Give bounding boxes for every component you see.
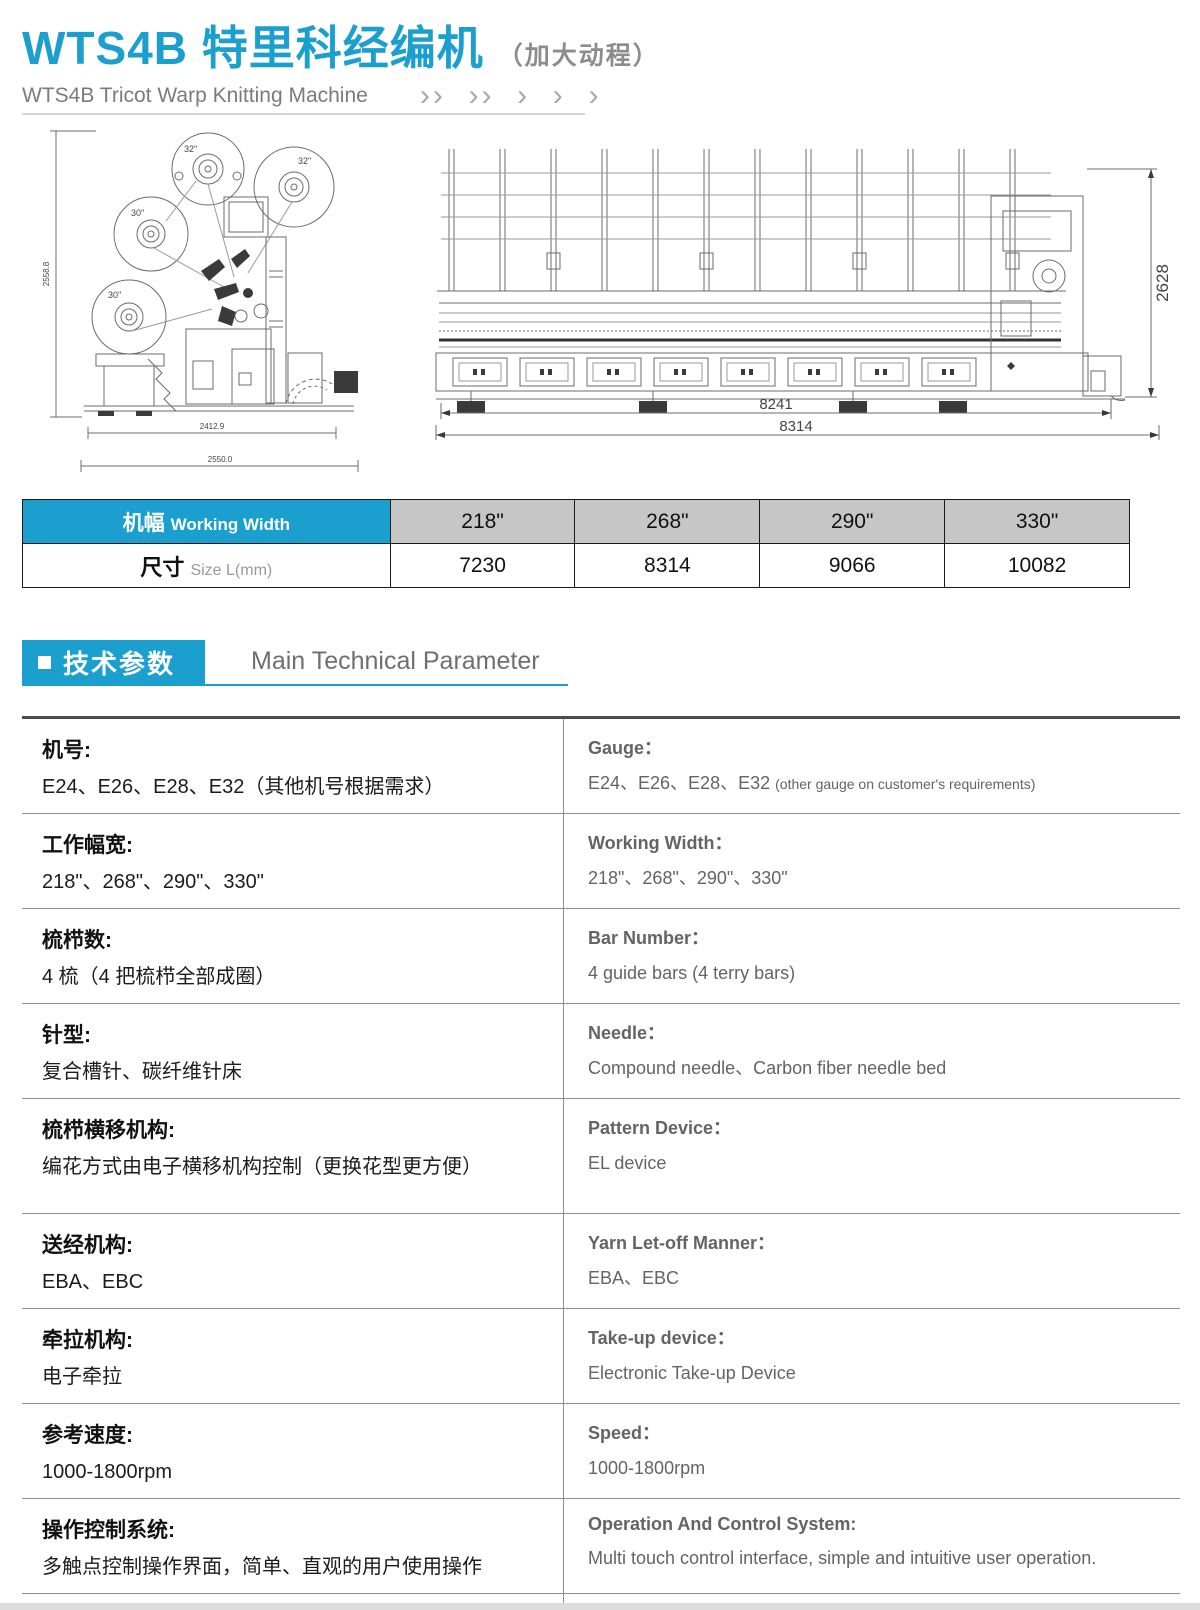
param-cn-label: 送经机构: <box>42 1229 547 1259</box>
param-en-cell: Yarn Let-off Manner： EBA、EBC <box>563 1214 1180 1308</box>
param-en-label: Pattern Device： <box>588 1114 1164 1140</box>
param-en-label: Speed： <box>588 1419 1164 1445</box>
width-column-218: 218" <box>390 500 575 544</box>
width-column-330: 330" <box>945 500 1130 544</box>
subtitle-row: WTS4B Tricot Warp Knitting Machine ›› ››… <box>22 84 1200 108</box>
param-en-note: (other gauge on customer's requirements) <box>775 776 1035 792</box>
param-cn-value: 电子牵拉 <box>42 1362 547 1393</box>
param-en-label: Yarn Let-off Manner： <box>588 1229 1164 1255</box>
page-header: WTS4B 特里科经编机 （加大动程） <box>22 12 1200 78</box>
width-column-290: 290" <box>760 500 945 544</box>
size-header-en: Working Width <box>171 515 290 534</box>
title-chinese: 特里科经编机 <box>202 22 484 74</box>
beam-label-32b: 32" <box>298 156 311 166</box>
param-en-value: EL device <box>588 1151 1164 1176</box>
front-view-drawing: 2628 8241 8314 <box>411 141 1181 441</box>
size-table-value-row: 尺寸Size L(mm) 7230 8314 9066 10082 <box>23 544 1130 588</box>
param-en-label: Working Width： <box>588 829 1164 855</box>
param-en-label: Gauge： <box>588 734 1164 760</box>
table-row: 操作控制系统: 多触点控制操作界面，简单、直观的用户使用操作 Operation… <box>22 1499 1180 1594</box>
param-en-cell: Operation And Control System: Multi touc… <box>563 1499 1180 1593</box>
beam-label-30a: 30" <box>131 208 144 218</box>
size-value-330: 10082 <box>945 544 1130 588</box>
param-en-value: Multi touch control interface, simple an… <box>588 1546 1164 1571</box>
param-en-value: Electronic Take-up Device <box>588 1361 1164 1386</box>
param-cn-value: 1000-1800rpm <box>42 1457 547 1488</box>
title-suffix: （加大动程） <box>498 36 660 72</box>
param-cn-cell: 工作幅宽: 218"、268"、290"、330" <box>22 814 563 908</box>
param-cn-label: 针型: <box>42 1019 547 1049</box>
section-badge: 技术参数 <box>22 640 205 684</box>
param-cn-label: 梳栉数: <box>42 924 547 954</box>
front-dim-inner: 8241 <box>759 396 792 413</box>
table-row: 牵拉机构: 电子牵拉 Take-up device： Electronic Ta… <box>22 1309 1180 1404</box>
beam-label-32a: 32" <box>184 144 197 154</box>
table-row: 工作幅宽: 218"、268"、290"、330" Working Width：… <box>22 814 1180 909</box>
chevron-decoration-icon: ›› ›› › › › <box>420 86 602 106</box>
param-en-cell: Gauge： E24、E26、E28、E32 (other gauge on c… <box>563 719 1180 813</box>
param-en-cell: Pattern Device： EL device <box>563 1099 1180 1213</box>
table-row: 送经机构: EBA、EBC Yarn Let-off Manner： EBA、E… <box>22 1214 1180 1309</box>
table-row: 机号: E24、E26、E28、E32（其他机号根据需求） Gauge： E24… <box>22 719 1180 814</box>
beam-label-30b: 30" <box>108 290 121 300</box>
param-cn-value: 复合槽针、碳纤维针床 <box>42 1057 547 1088</box>
size-table-header-row: 机幅Working Width 218" 268" 290" 330" <box>23 500 1130 544</box>
param-cn-cell: 参考速度: 1000-1800rpm <box>22 1404 563 1498</box>
param-cn-label: 工作幅宽: <box>42 829 547 859</box>
section-title-cn: 技术参数 <box>63 644 175 681</box>
param-en-label: Operation And Control System: <box>588 1514 1164 1535</box>
param-cn-cell: 梳栉横移机构: 编花方式由电子横移机构控制（更换花型更方便） <box>22 1099 563 1213</box>
param-en-cell: Take-up device： Electronic Take-up Devic… <box>563 1309 1180 1403</box>
param-en-cell: Speed： 1000-1800rpm <box>563 1404 1180 1498</box>
param-cn-label: 梳栉横移机构: <box>42 1114 547 1144</box>
param-en-value: 4 guide bars (4 terry bars) <box>588 961 1164 986</box>
param-cn-value: 4 梳（4 把梳栉全部成圈） <box>42 962 547 993</box>
size-row-cn: 尺寸 <box>140 555 184 580</box>
width-column-268: 268" <box>575 500 760 544</box>
param-cn-value: E24、E26、E28、E32（其他机号根据需求） <box>42 772 547 803</box>
param-en-value: Compound needle、Carbon fiber needle bed <box>588 1056 1164 1081</box>
param-cn-cell: 针型: 复合槽针、碳纤维针床 <box>22 1004 563 1098</box>
size-header-cn: 机幅 <box>123 512 165 535</box>
size-value-290: 9066 <box>760 544 945 588</box>
section-header: 技术参数 Main Technical Parameter <box>22 640 568 686</box>
table-row: 梳栉横移机构: 编花方式由电子横移机构控制（更换花型更方便） Pattern D… <box>22 1099 1180 1214</box>
param-cn-label: 参考速度: <box>42 1419 547 1449</box>
table-row: 参考速度: 1000-1800rpm Speed： 1000-1800rpm <box>22 1404 1180 1499</box>
param-en-value: 1000-1800rpm <box>588 1456 1164 1481</box>
param-cn-label: 操作控制系统: <box>42 1514 547 1544</box>
param-en-cell: Needle： Compound needle、Carbon fiber nee… <box>563 1004 1180 1098</box>
square-bullet-icon <box>38 656 51 669</box>
param-cn-value: 编花方式由电子横移机构控制（更换花型更方便） <box>42 1152 547 1183</box>
param-en-value: E24、E26、E28、E32 (other gauge on customer… <box>588 771 1164 796</box>
side-view-drawing: 2558.8 32" 32" 30" 30" <box>36 121 381 481</box>
param-cn-value: 218"、268"、290"、330" <box>42 867 547 898</box>
param-cn-value: 多触点控制操作界面，简单、直观的用户使用操作 <box>42 1552 547 1583</box>
param-cn-label: 机号: <box>42 734 547 764</box>
table-row: 针型: 复合槽针、碳纤维针床 Needle： Compound needle、C… <box>22 1004 1180 1099</box>
param-cn-value: EBA、EBC <box>42 1267 547 1298</box>
side-dim-inner: 2412.9 <box>200 422 225 431</box>
parameter-table: 机号: E24、E26、E28、E32（其他机号根据需求） Gauge： E24… <box>22 716 1180 1610</box>
brochure-page: WTS4B 特里科经编机 （加大动程） WTS4B Tricot Warp Kn… <box>0 0 1200 1610</box>
front-dim-height: 2628 <box>1153 264 1172 302</box>
front-dim-outer: 8314 <box>779 418 812 435</box>
param-cn-cell: 操作控制系统: 多触点控制操作界面，简单、直观的用户使用操作 <box>22 1499 563 1593</box>
page-title: WTS4B 特里科经编机 <box>22 12 484 78</box>
size-row-en: Size L(mm) <box>190 562 272 579</box>
param-en-value: EBA、EBC <box>588 1266 1164 1291</box>
side-dim-height: 2558.8 <box>42 261 51 286</box>
size-table-header-cell: 机幅Working Width <box>23 500 391 544</box>
subtitle-divider <box>22 113 585 115</box>
param-cn-cell: 梳栉数: 4 梳（4 把梳栉全部成圈） <box>22 909 563 1003</box>
size-row-label-cell: 尺寸Size L(mm) <box>23 544 391 588</box>
side-dim-outer: 2550.0 <box>208 455 233 464</box>
param-cn-cell: 牵拉机构: 电子牵拉 <box>22 1309 563 1403</box>
page-bottom-strip <box>0 1603 1200 1610</box>
param-cn-label: 牵拉机构: <box>42 1324 547 1354</box>
title-model: WTS4B <box>22 22 188 74</box>
param-en-value-text: E24、E26、E28、E32 <box>588 773 775 793</box>
technical-drawings: 2558.8 32" 32" 30" 30" <box>22 121 1200 489</box>
param-en-value: 218"、268"、290"、330" <box>588 866 1164 891</box>
size-table: 机幅Working Width 218" 268" 290" 330" 尺寸Si… <box>22 499 1130 588</box>
param-en-cell: Bar Number： 4 guide bars (4 terry bars) <box>563 909 1180 1003</box>
param-en-label: Take-up device： <box>588 1324 1164 1350</box>
section-title-en: Main Technical Parameter <box>251 647 540 684</box>
page-subtitle: WTS4B Tricot Warp Knitting Machine <box>22 84 368 108</box>
size-value-218: 7230 <box>390 544 575 588</box>
param-cn-cell: 机号: E24、E26、E28、E32（其他机号根据需求） <box>22 719 563 813</box>
param-en-cell: Working Width： 218"、268"、290"、330" <box>563 814 1180 908</box>
param-en-label: Bar Number： <box>588 924 1164 950</box>
size-value-268: 8314 <box>575 544 760 588</box>
param-en-label: Needle： <box>588 1019 1164 1045</box>
param-cn-cell: 送经机构: EBA、EBC <box>22 1214 563 1308</box>
table-row: 梳栉数: 4 梳（4 把梳栉全部成圈） Bar Number： 4 guide … <box>22 909 1180 1004</box>
